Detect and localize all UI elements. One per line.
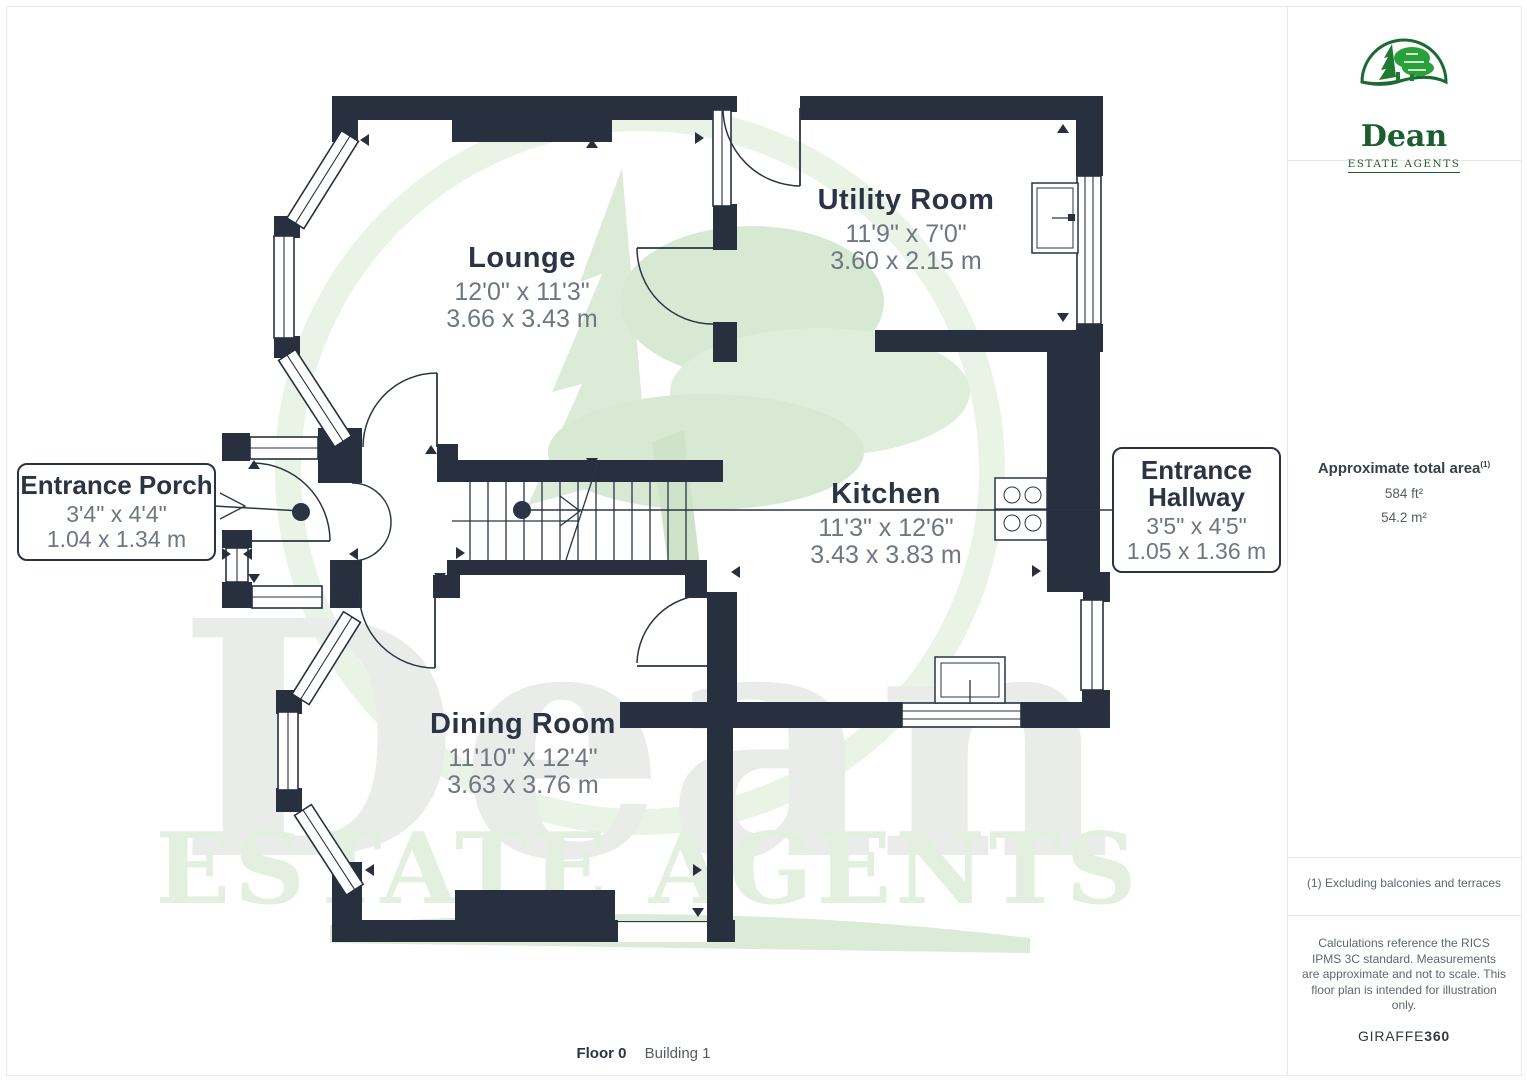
sink-icon bbox=[935, 657, 1005, 703]
callout-dim-metric: 1.04 x 1.34 m bbox=[19, 527, 214, 552]
area-footnote: (1) Excluding balconies and terraces bbox=[1297, 876, 1511, 890]
giraffe360-brand: GIRAFFE360 bbox=[1287, 1028, 1521, 1044]
agency-logo-icon bbox=[1344, 30, 1464, 130]
sidebar-rule bbox=[1288, 857, 1521, 858]
floor-label: Floor 0 bbox=[576, 1045, 626, 1062]
callout-entrance-hallway: Entrance Hallway 3'5" x 4'5" 1.05 x 1.36… bbox=[1112, 447, 1281, 573]
callout-name-line1: Entrance bbox=[1114, 457, 1279, 484]
lounge-bay-window bbox=[274, 236, 294, 338]
kitchen-rear-window bbox=[902, 703, 1021, 727]
agency-logo: Dean ESTATE AGENTS bbox=[1287, 30, 1521, 173]
total-area-label: Approximate total area(1) bbox=[1287, 460, 1521, 477]
hob-icon bbox=[995, 478, 1047, 540]
disclaimer-text: Calculations reference the RICS IPMS 3C … bbox=[1302, 936, 1506, 1014]
total-area-block: Approximate total area(1) 584 ft² 54.2 m… bbox=[1287, 460, 1521, 525]
callout-entrance-porch: Entrance Porch 3'4" x 4'4" 1.04 x 1.34 m bbox=[17, 463, 216, 561]
utility-window bbox=[1077, 176, 1101, 324]
kitchen-side-window bbox=[1081, 600, 1103, 690]
callout-dim-metric: 1.05 x 1.36 m bbox=[1114, 539, 1279, 564]
total-area-metric: 54.2 m² bbox=[1287, 510, 1521, 525]
callout-name: Entrance Porch bbox=[19, 472, 214, 499]
callout-name-line2: Hallway bbox=[1114, 484, 1279, 511]
dining-rear-opening bbox=[618, 920, 707, 942]
porch-rear-window bbox=[252, 586, 322, 608]
building-label: Building 1 bbox=[645, 1045, 711, 1062]
internal-window bbox=[713, 110, 731, 206]
agency-logo-word: Dean bbox=[1287, 119, 1521, 154]
total-area-imperial: 584 ft² bbox=[1287, 486, 1521, 501]
total-area-superscript: (1) bbox=[1480, 460, 1490, 469]
sidebar-rule bbox=[1288, 915, 1521, 916]
floorplan-page: Dean ESTATE AGENTS bbox=[0, 0, 1527, 1080]
lounge-bay-window bbox=[287, 131, 359, 229]
footer: Floor 0 Building 1 bbox=[0, 1045, 1287, 1062]
washing-machine-icon bbox=[1032, 183, 1078, 253]
lounge-door bbox=[363, 373, 437, 447]
agency-logo-tagline: ESTATE AGENTS bbox=[1348, 158, 1461, 173]
callout-dim-imperial: 3'4" x 4'4" bbox=[19, 502, 214, 527]
total-area-label-text: Approximate total area bbox=[1318, 460, 1481, 477]
brand-name: GIRAFFE bbox=[1358, 1028, 1424, 1044]
porch-front-window bbox=[250, 437, 318, 459]
dining-bay-window bbox=[278, 712, 298, 790]
brand-suffix: 360 bbox=[1424, 1028, 1450, 1044]
callout-dim-imperial: 3'5" x 4'5" bbox=[1114, 514, 1279, 539]
